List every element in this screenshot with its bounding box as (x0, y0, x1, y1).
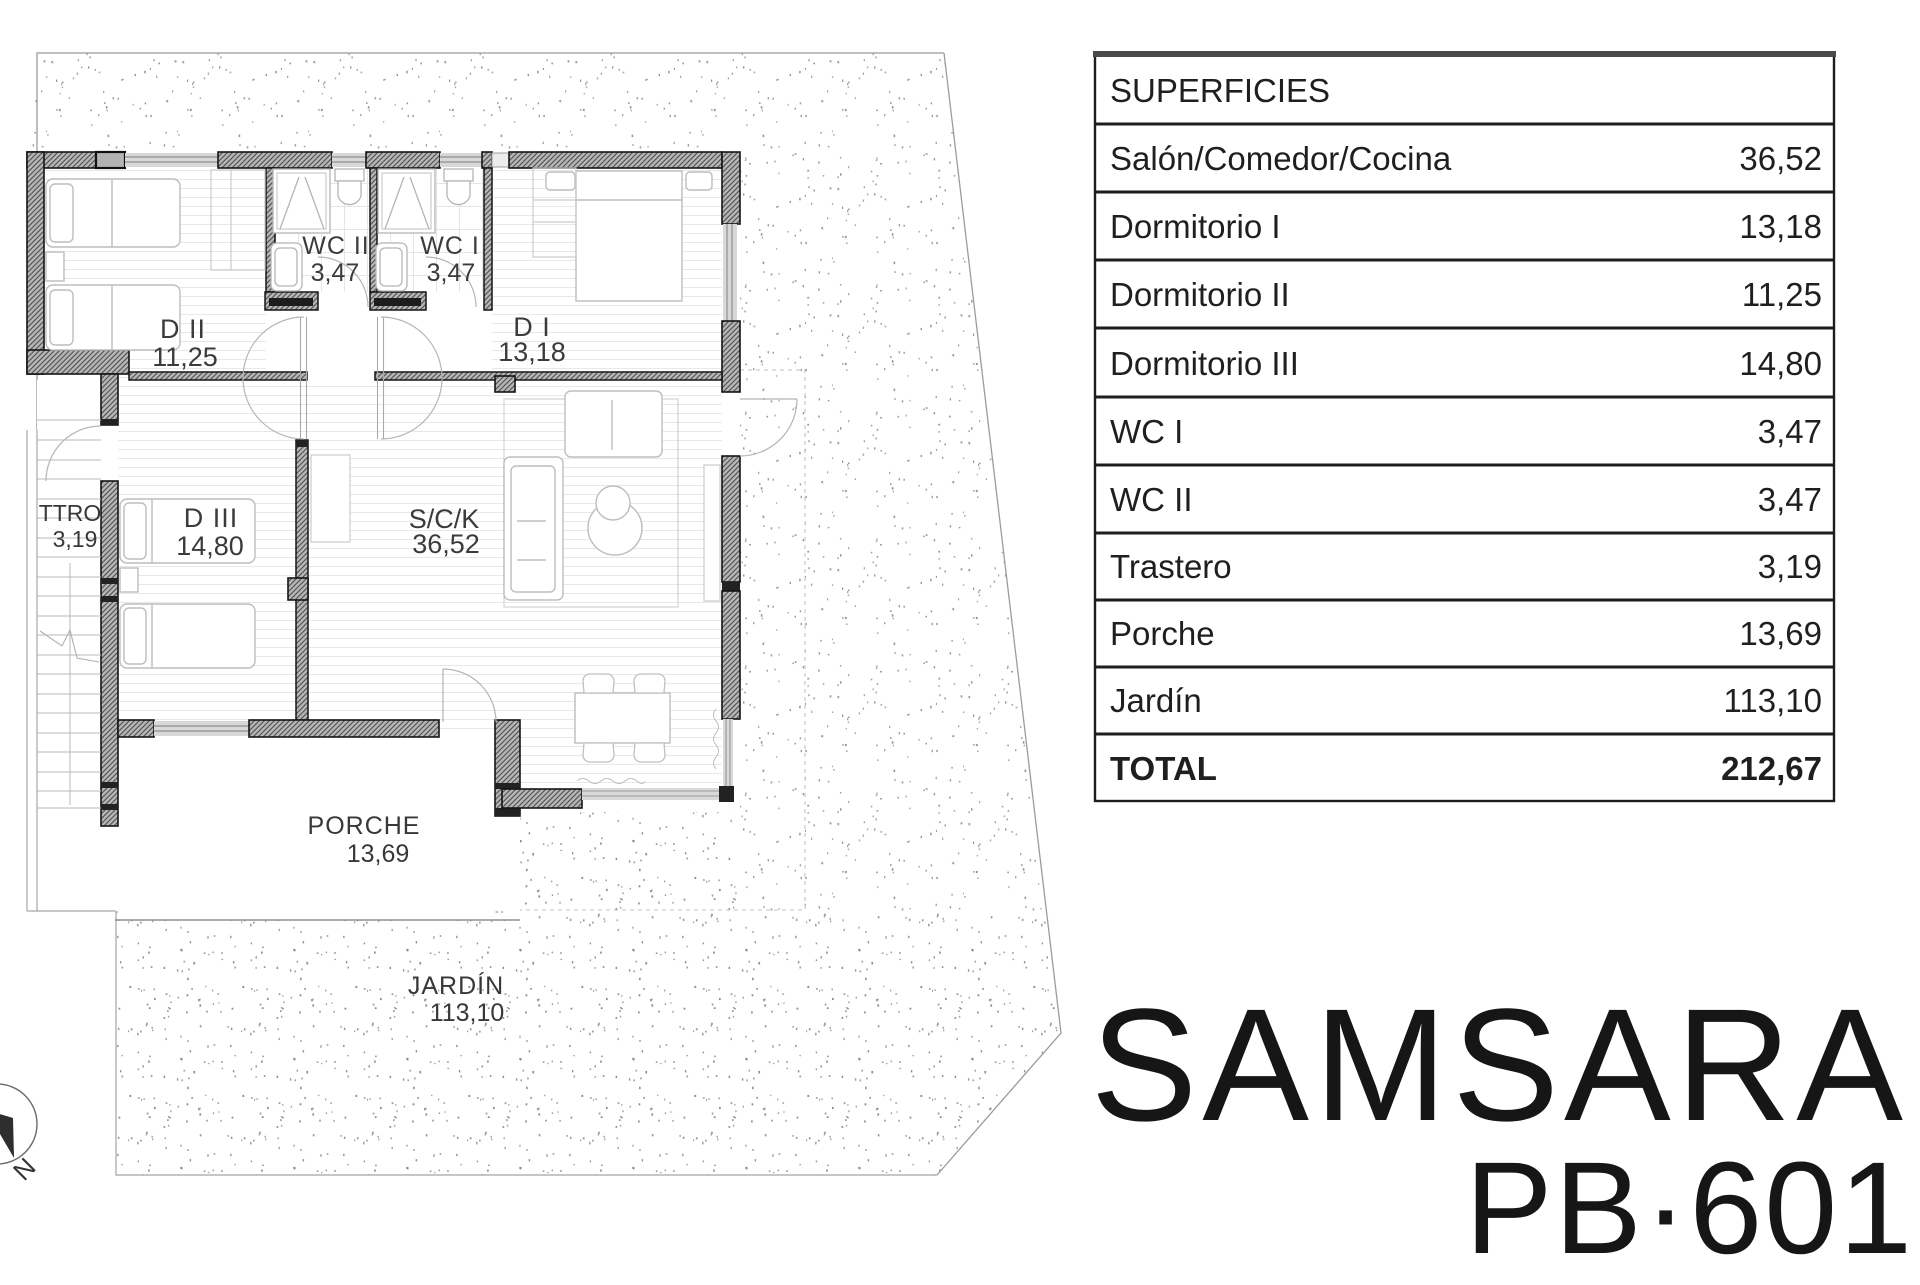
svg-text:212,67: 212,67 (1721, 750, 1822, 787)
svg-text:WC II: WC II (1110, 481, 1192, 518)
svg-text:3,47: 3,47 (1758, 413, 1822, 450)
svg-text:WC II: WC II (302, 232, 370, 260)
svg-text:13,18: 13,18 (498, 337, 566, 367)
svg-text:WC I: WC I (420, 232, 480, 260)
svg-text:13,69: 13,69 (1739, 615, 1822, 652)
svg-text:WC I: WC I (1110, 413, 1183, 450)
svg-text:113,10: 113,10 (1724, 682, 1822, 719)
svg-text:3,47: 3,47 (1758, 481, 1822, 518)
svg-text:Dormitorio I: Dormitorio I (1110, 208, 1281, 245)
svg-text:113,10: 113,10 (430, 999, 505, 1027)
svg-text:Trastero: Trastero (1110, 548, 1232, 585)
svg-text:D III: D III (184, 503, 239, 533)
svg-text:Dormitorio II: Dormitorio II (1110, 276, 1290, 313)
svg-text:TOTAL: TOTAL (1110, 750, 1217, 787)
svg-text:N: N (7, 1152, 41, 1186)
svg-text:D II: D II (160, 314, 206, 344)
svg-text:Salón/Comedor/Cocina: Salón/Comedor/Cocina (1110, 140, 1452, 177)
svg-text:TTRO: TTRO (39, 500, 102, 526)
svg-text:SAMSARA: SAMSARA (1091, 975, 1908, 1154)
svg-text:Dormitorio III: Dormitorio III (1110, 345, 1299, 382)
svg-text:PB·601: PB·601 (1465, 1134, 1914, 1280)
svg-text:11,25: 11,25 (152, 342, 218, 372)
svg-text:3,19: 3,19 (1758, 548, 1822, 585)
svg-text:13,69: 13,69 (347, 840, 410, 868)
svg-text:14,80: 14,80 (176, 531, 244, 561)
svg-text:SUPERFICIES: SUPERFICIES (1110, 72, 1330, 109)
svg-text:Porche: Porche (1110, 615, 1215, 652)
svg-text:3,19: 3,19 (53, 526, 98, 552)
svg-text:JARDÍN: JARDÍN (408, 971, 504, 1000)
svg-text:PORCHE: PORCHE (308, 812, 421, 840)
svg-text:13,18: 13,18 (1739, 208, 1822, 245)
svg-text:3,47: 3,47 (427, 259, 476, 287)
svg-text:36,52: 36,52 (412, 529, 480, 559)
svg-text:3,47: 3,47 (311, 259, 360, 287)
svg-text:11,25: 11,25 (1742, 276, 1822, 313)
svg-text:Jardín: Jardín (1110, 682, 1202, 719)
svg-text:14,80: 14,80 (1739, 345, 1822, 382)
svg-text:36,52: 36,52 (1739, 140, 1822, 177)
